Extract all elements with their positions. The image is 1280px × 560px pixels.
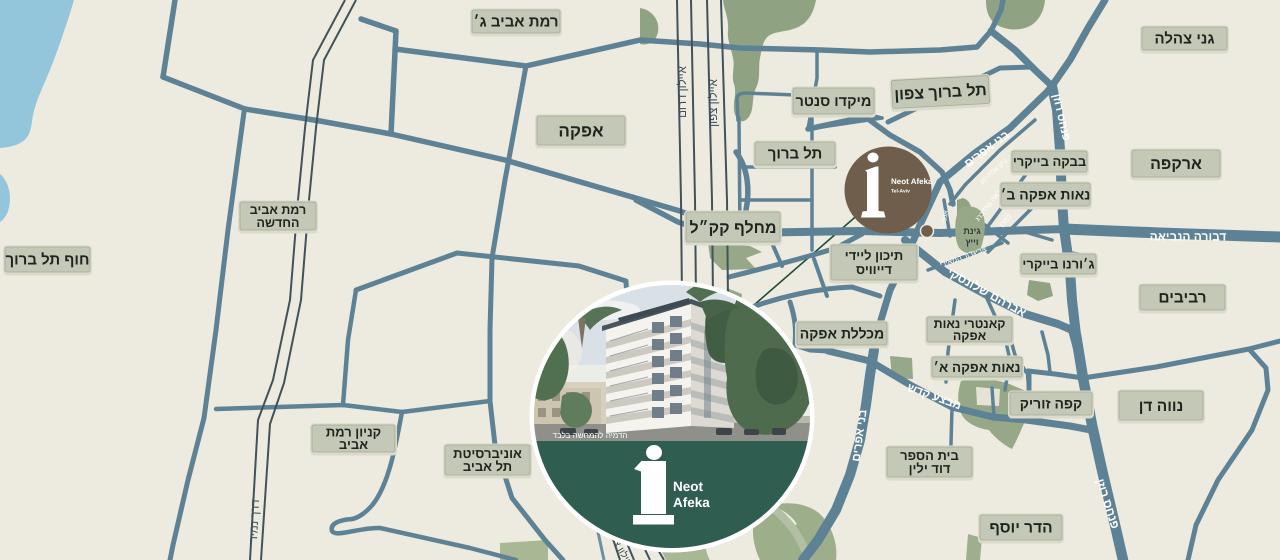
svg-text:רמת אביב: רמת אביב [250,203,306,217]
svg-text:Neot: Neot [673,479,704,494]
svg-text:החדשה: החדשה [257,216,300,230]
svg-text:דוד ילין: דוד ילין [909,461,951,476]
svg-text:Neot Afeka: Neot Afeka [891,177,933,186]
svg-text:מחלף קק״ל: מחלף קק״ל [690,219,777,237]
svg-text:נאות אפקה א׳: נאות אפקה א׳ [934,360,1021,375]
svg-text:Afeka: Afeka [673,495,710,510]
svg-text:דייוויס: דייוויס [856,262,892,277]
svg-text:אביב: אביב [339,437,368,452]
svg-text:רמת אביב ג׳: רמת אביב ג׳ [473,14,558,31]
svg-text:איילון דרום: איילון דרום [676,65,689,118]
svg-text:מכללת אפקה: מכללת אפקה [800,326,884,342]
svg-text:גני צהלה: גני צהלה [1154,31,1214,48]
svg-text:הדמיה להמחשה בלבד: הדמיה להמחשה בלבד [553,431,628,440]
svg-text:נאות אפקה ב׳: נאות אפקה ב׳ [1001,187,1091,203]
svg-text:ג׳ורנו בייקרי: ג׳ורנו בייקרי [1022,257,1094,272]
svg-text:Tel-Aviv: Tel-Aviv [891,189,910,195]
svg-text:תל ברוך: תל ברוך [768,146,823,163]
svg-text:דרך נמיר: דרך נמיר [248,498,262,542]
svg-text:תל אביב: תל אביב [463,459,512,474]
svg-text:רביבים: רביבים [1158,290,1206,307]
svg-text:חוף תל ברוך: חוף תל ברוך [6,252,90,269]
svg-text:אפקה: אפקה [558,122,604,141]
svg-text:תיכון ליידי: תיכון ליידי [845,248,903,263]
svg-text:איילון צפון: איילון צפון [707,78,720,126]
svg-text:נווה דן: נווה דן [1139,398,1184,415]
svg-text:הדר יוסף: הדר יוסף [989,520,1052,537]
svg-text:דבורה הנביאה: דבורה הנביאה [1150,230,1227,244]
svg-text:בבקה בייקרי: בבקה בייקרי [1013,154,1086,169]
svg-text:וייץ: וייץ [965,237,978,247]
svg-text:מיקדו סנטר: מיקדו סנטר [796,94,872,110]
svg-text:גינת: גינת [963,226,981,236]
svg-text:אפקה: אפקה [953,329,987,343]
svg-text:קפה זוריק: קפה זוריק [1020,396,1082,412]
svg-text:ארקפה: ארקפה [1150,156,1202,173]
